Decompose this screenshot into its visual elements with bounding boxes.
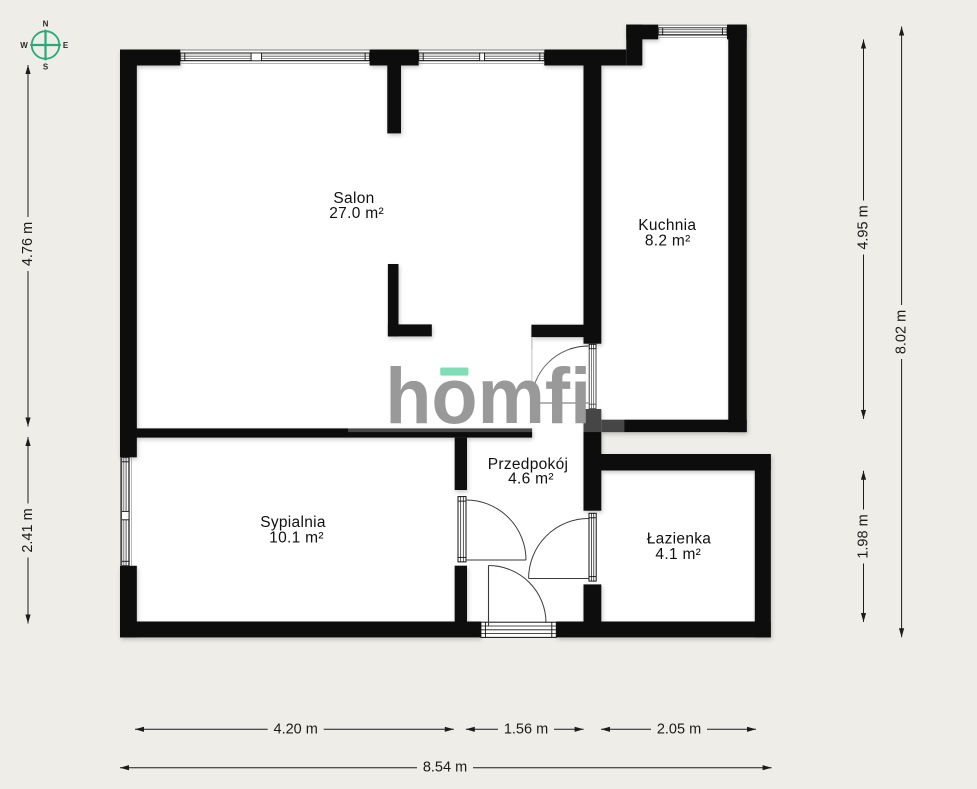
svg-text:homfi: homfi bbox=[385, 352, 591, 440]
svg-text:2.05 m: 2.05 m bbox=[657, 721, 701, 737]
svg-text:4.1 m²: 4.1 m² bbox=[655, 546, 701, 563]
svg-text:4.6 m²: 4.6 m² bbox=[508, 471, 554, 488]
svg-text:10.1 m²: 10.1 m² bbox=[269, 530, 324, 547]
svg-text:N: N bbox=[43, 20, 49, 29]
svg-text:4.20 m: 4.20 m bbox=[274, 721, 318, 737]
svg-text:4.95 m: 4.95 m bbox=[856, 205, 872, 249]
svg-text:1.56 m: 1.56 m bbox=[504, 721, 548, 737]
svg-text:8.02 m: 8.02 m bbox=[894, 310, 910, 354]
svg-text:S: S bbox=[43, 62, 49, 71]
svg-text:E: E bbox=[63, 41, 69, 50]
svg-text:27.0 m²: 27.0 m² bbox=[329, 205, 384, 222]
svg-text:2.41 m: 2.41 m bbox=[20, 508, 36, 552]
svg-text:8.54 m: 8.54 m bbox=[423, 760, 467, 776]
svg-text:1.98 m: 1.98 m bbox=[856, 514, 872, 558]
svg-text:8.2 m²: 8.2 m² bbox=[645, 233, 691, 250]
svg-text:W: W bbox=[20, 41, 28, 50]
svg-text:Kuchnia: Kuchnia bbox=[638, 217, 696, 234]
svg-text:4.76 m: 4.76 m bbox=[20, 222, 36, 266]
